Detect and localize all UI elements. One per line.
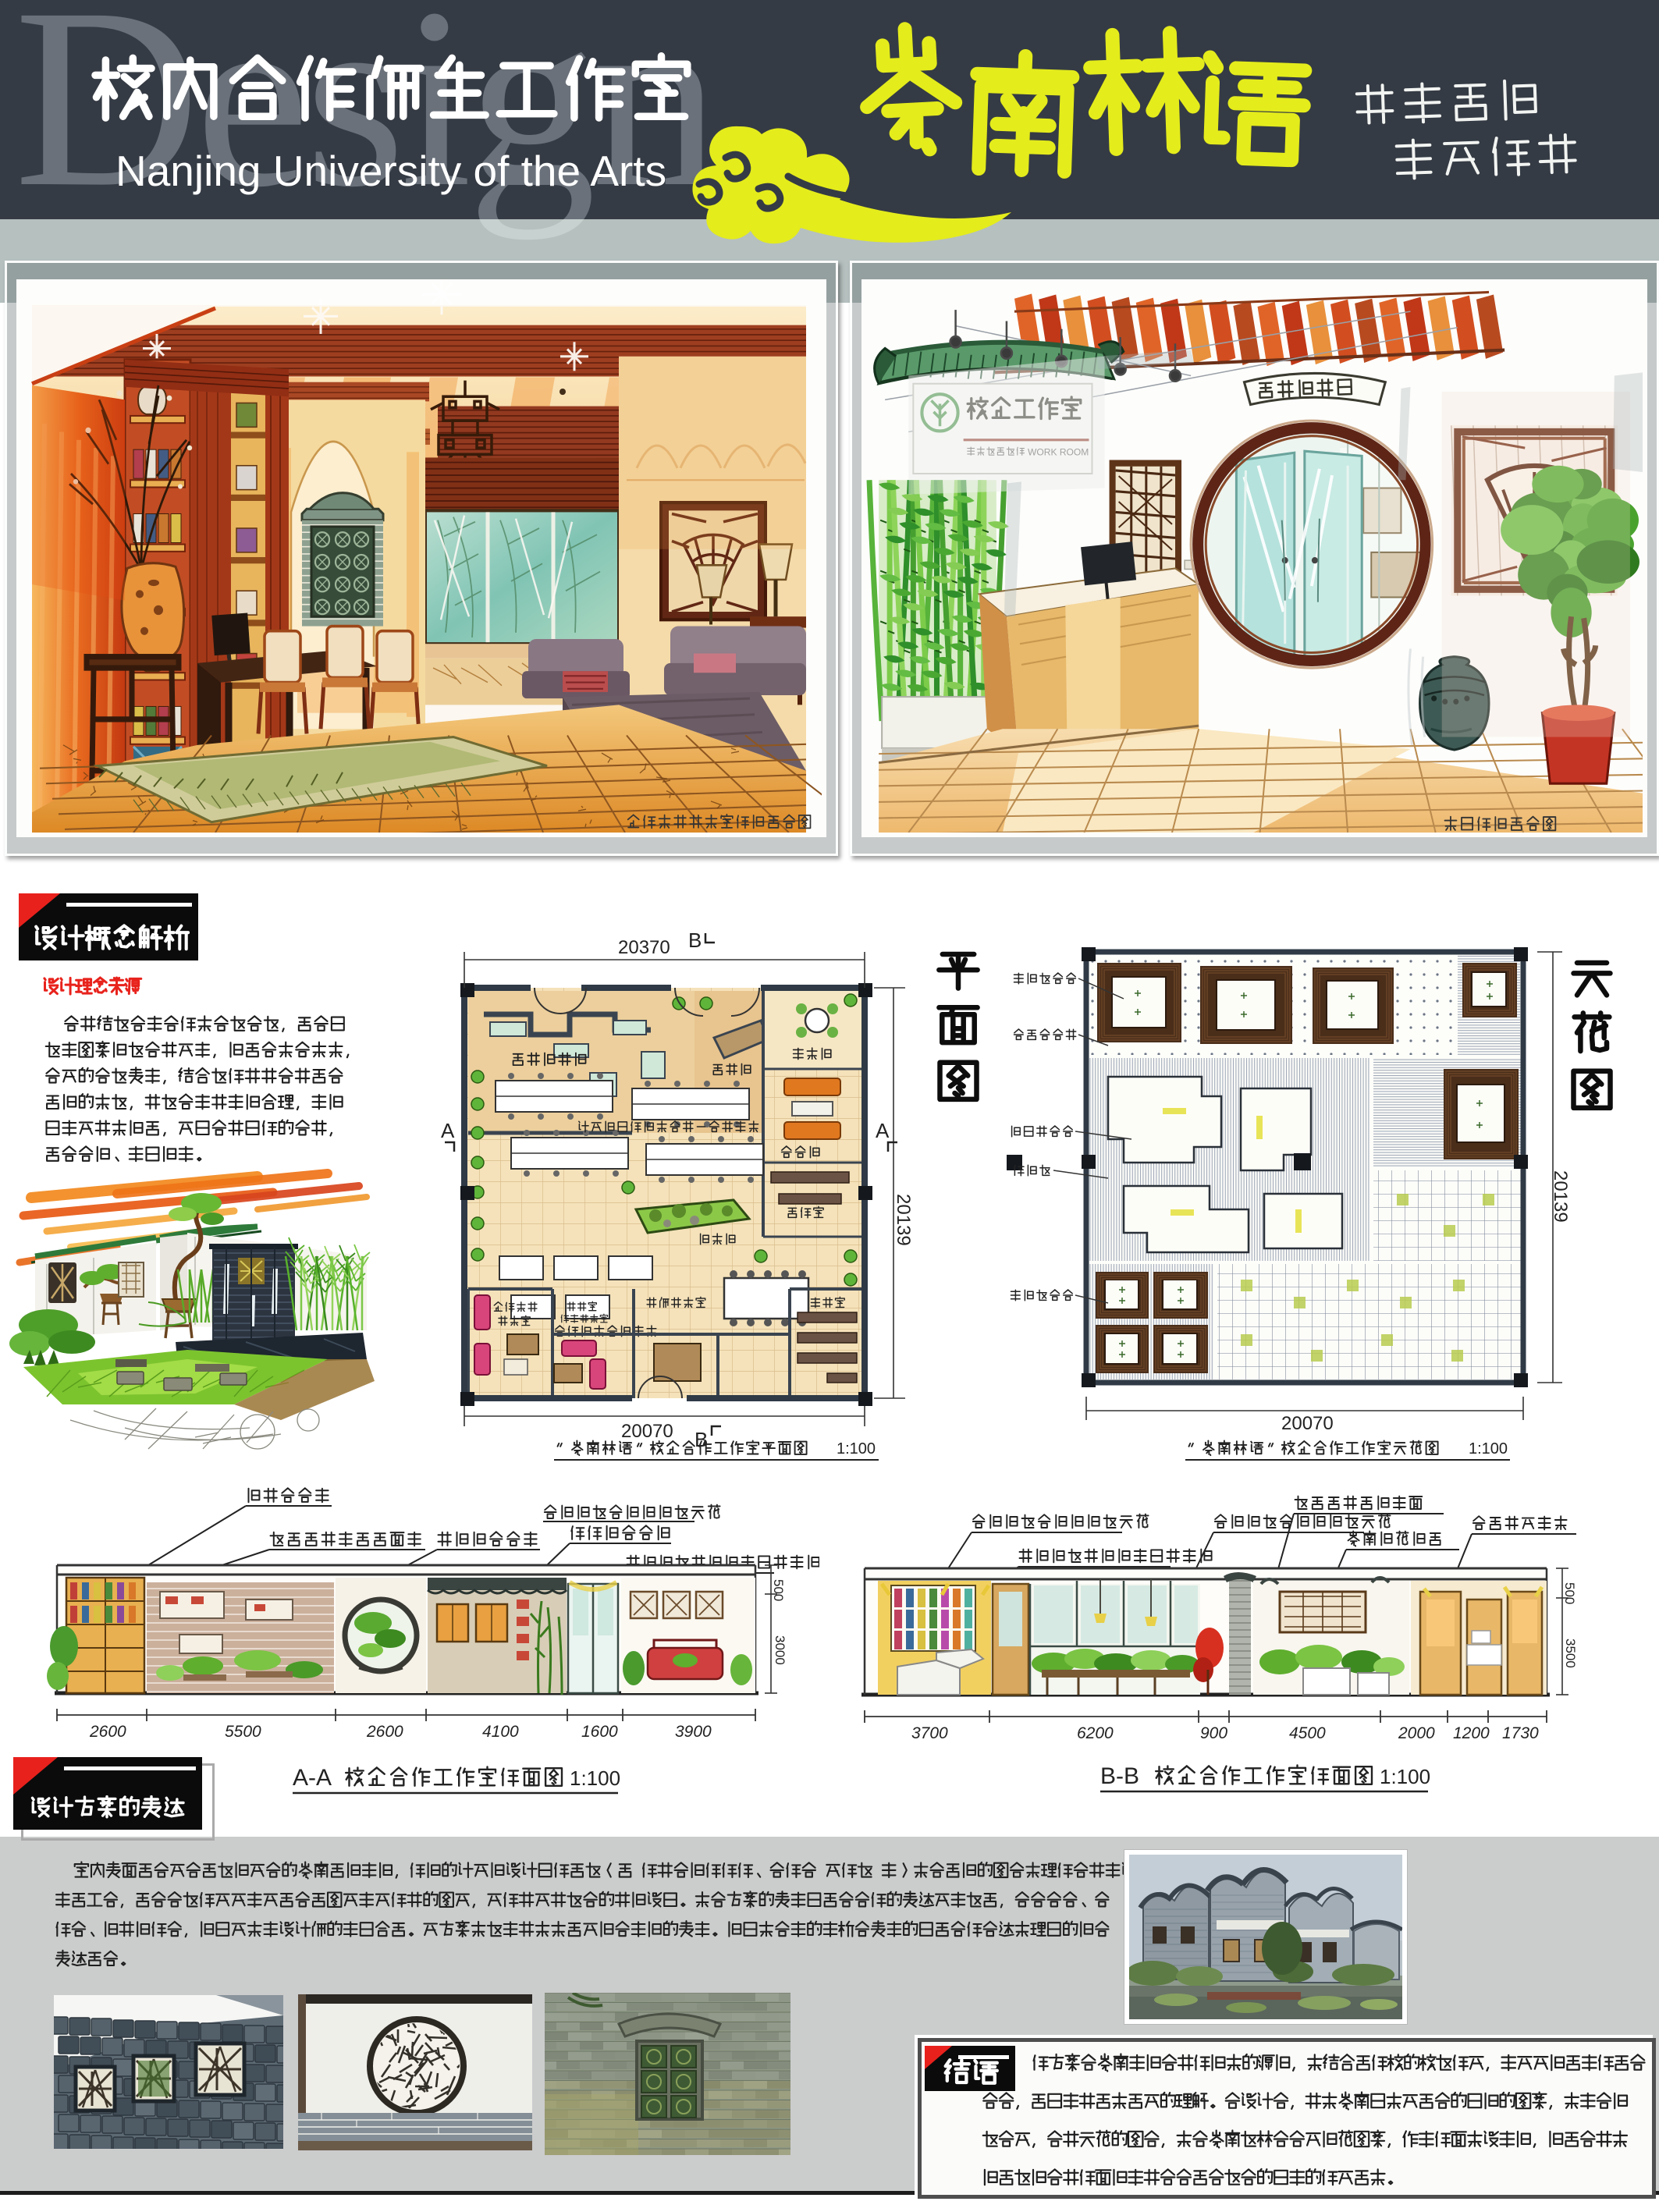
svg-text:20070: 20070 <box>1281 1413 1334 1434</box>
svg-text:2600: 2600 <box>89 1723 126 1741</box>
svg-text:3900: 3900 <box>675 1723 712 1741</box>
svg-text:900: 900 <box>1200 1724 1227 1742</box>
svg-text:A: A <box>876 1119 890 1142</box>
svg-text:500: 500 <box>1562 1582 1577 1604</box>
svg-text:1:100: 1:100 <box>837 1440 876 1458</box>
svg-text:1:100: 1:100 <box>1469 1440 1508 1458</box>
svg-text:1730: 1730 <box>1502 1724 1539 1742</box>
svg-text:Nanjing University of the Arts: Nanjing University of the Arts <box>115 147 666 195</box>
svg-text:1200: 1200 <box>1453 1724 1490 1742</box>
svg-text:1:100: 1:100 <box>1380 1765 1430 1788</box>
svg-text:5500: 5500 <box>225 1723 261 1741</box>
svg-text:4500: 4500 <box>1289 1724 1326 1742</box>
svg-text:4100: 4100 <box>482 1723 519 1741</box>
svg-text:3700: 3700 <box>911 1724 948 1742</box>
svg-text:3000: 3000 <box>773 1635 787 1665</box>
svg-text:20370: 20370 <box>618 937 670 958</box>
svg-text:6200: 6200 <box>1077 1724 1114 1742</box>
svg-text:B: B <box>688 928 702 952</box>
svg-text:A: A <box>441 1119 455 1142</box>
svg-text:1:100: 1:100 <box>570 1766 620 1790</box>
svg-text:2000: 2000 <box>1398 1724 1435 1742</box>
svg-text:A-A: A-A <box>293 1765 332 1791</box>
svg-text:500: 500 <box>771 1579 786 1601</box>
svg-text:B-B: B-B <box>1100 1763 1139 1789</box>
svg-text:3500: 3500 <box>1563 1639 1578 1668</box>
svg-text:20139: 20139 <box>893 1194 914 1246</box>
svg-text:20139: 20139 <box>1550 1170 1571 1223</box>
svg-text:2600: 2600 <box>366 1723 403 1741</box>
svg-text:20070: 20070 <box>621 1421 673 1442</box>
svg-text:1600: 1600 <box>581 1723 618 1741</box>
